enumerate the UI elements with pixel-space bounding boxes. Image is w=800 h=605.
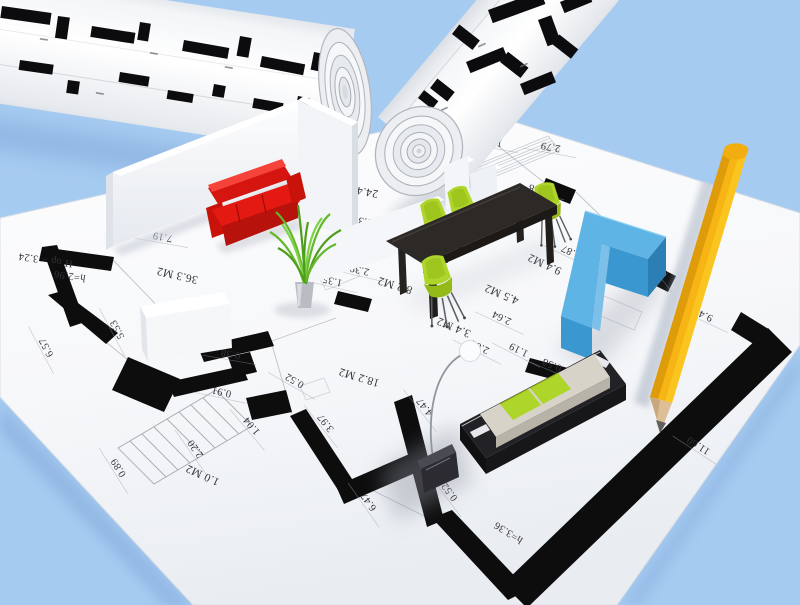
scene-3d-floorplan-render: H op = 3.24h=2.967.1936.3 M26.575.530.38… xyxy=(0,0,800,605)
white-wall-end xyxy=(106,172,113,250)
